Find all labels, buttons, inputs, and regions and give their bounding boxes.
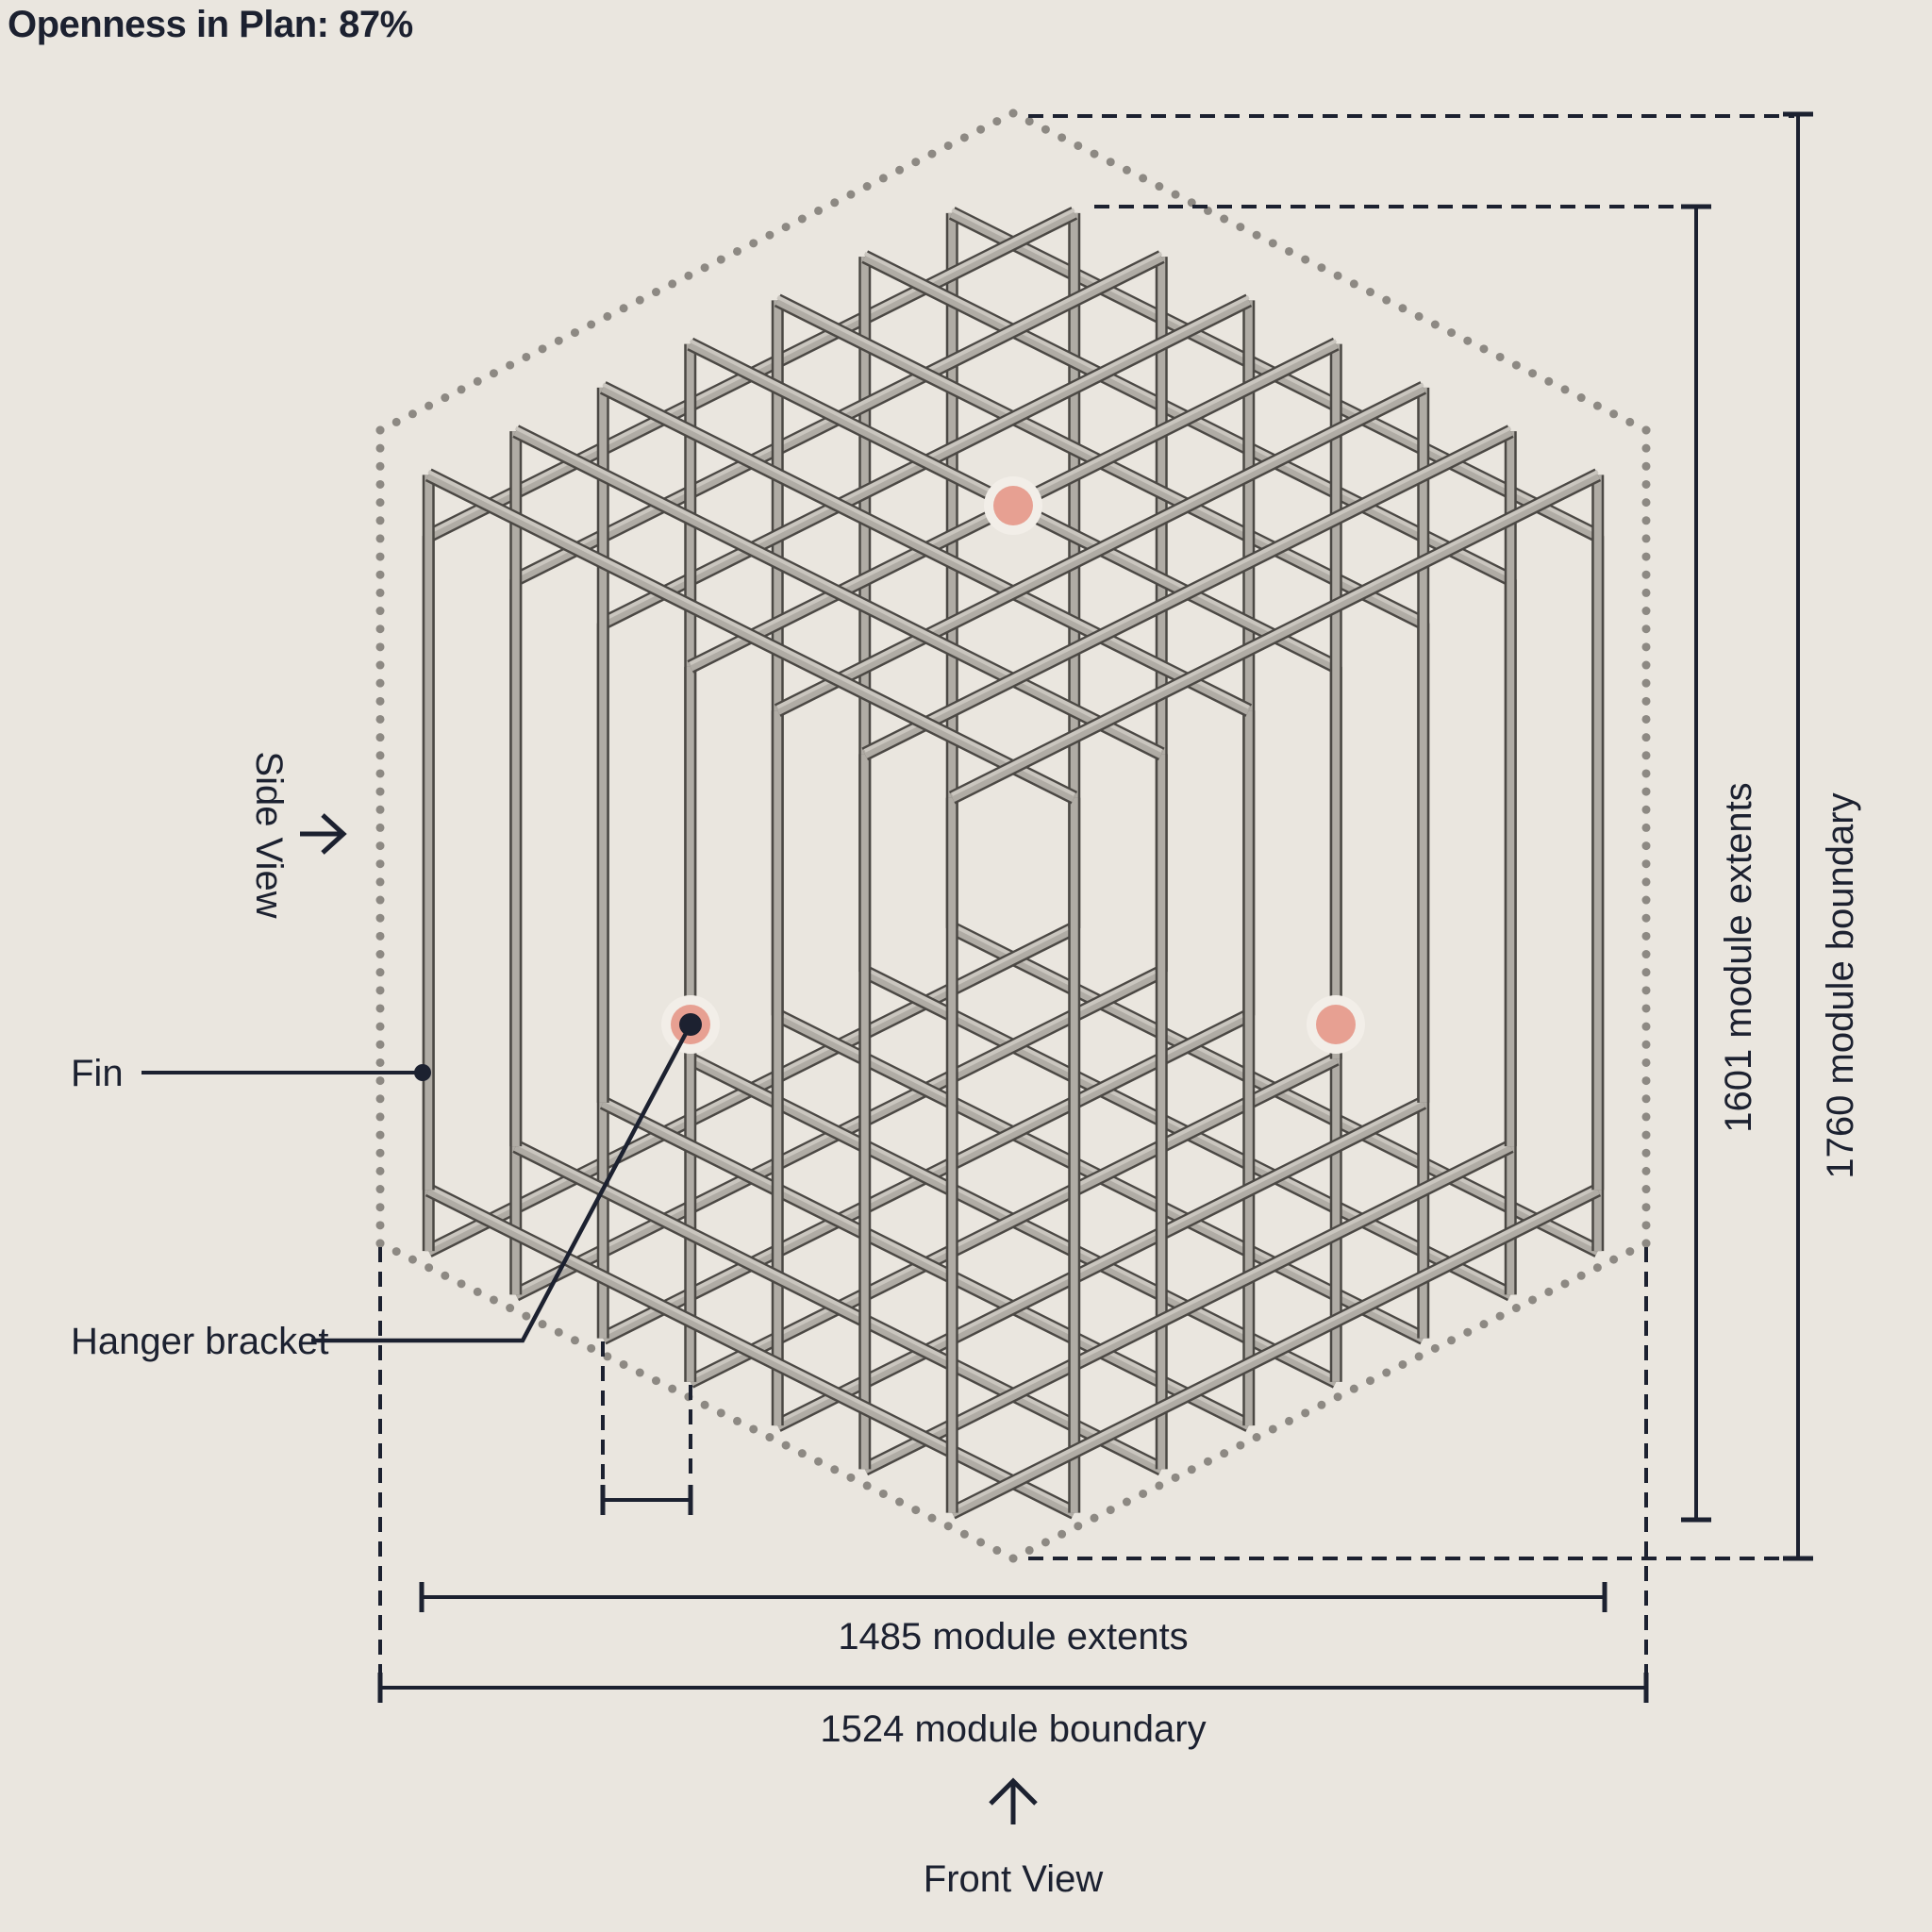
vertical-boundary-dim-label: 1760 module boundary [1820, 792, 1861, 1178]
page: { "header": { "title": "Openness in Plan… [0, 0, 1932, 1932]
side-view-label: Side View [248, 751, 290, 918]
fin-lattice [428, 209, 1598, 1512]
view-arrows [300, 815, 1036, 1824]
front-view-label: Front View [924, 1858, 1104, 1900]
vertical-extents-dim-label: 1601 module extents [1718, 782, 1759, 1132]
hanger-bracket-label: Hanger bracket [71, 1321, 328, 1362]
diagram-artwork [142, 109, 1813, 1825]
fin-label: Fin [71, 1053, 124, 1094]
isometric-module-diagram: Fin Hanger bracket Side View Front View … [0, 0, 1932, 1932]
horizontal-boundary-dim-label: 1524 module boundary [820, 1708, 1206, 1750]
horizontal-extents-dim-label: 1485 module extents [838, 1616, 1188, 1657]
